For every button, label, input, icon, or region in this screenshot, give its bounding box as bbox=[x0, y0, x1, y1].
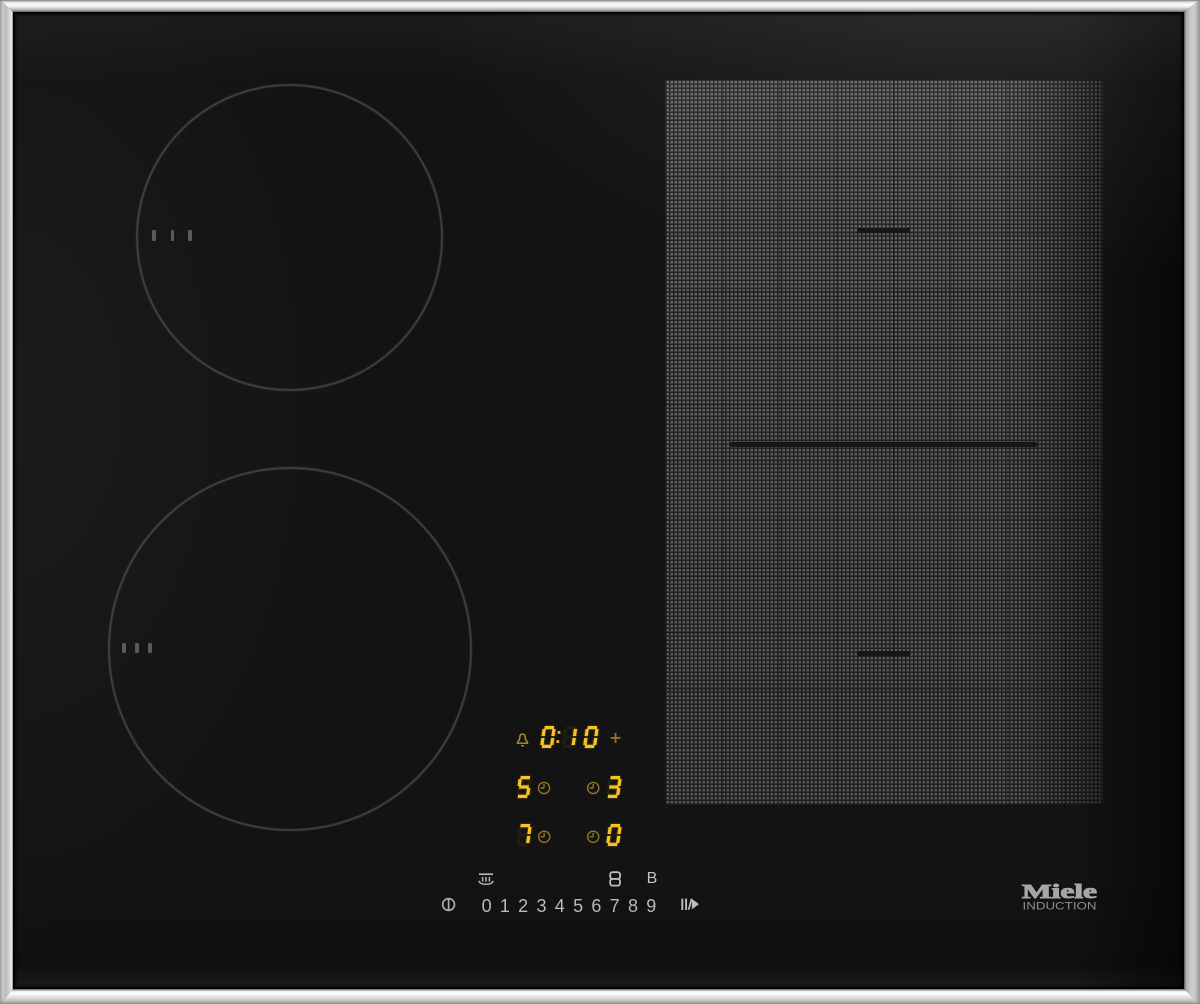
svg-text:INDUCTION: INDUCTION bbox=[1023, 901, 1097, 913]
